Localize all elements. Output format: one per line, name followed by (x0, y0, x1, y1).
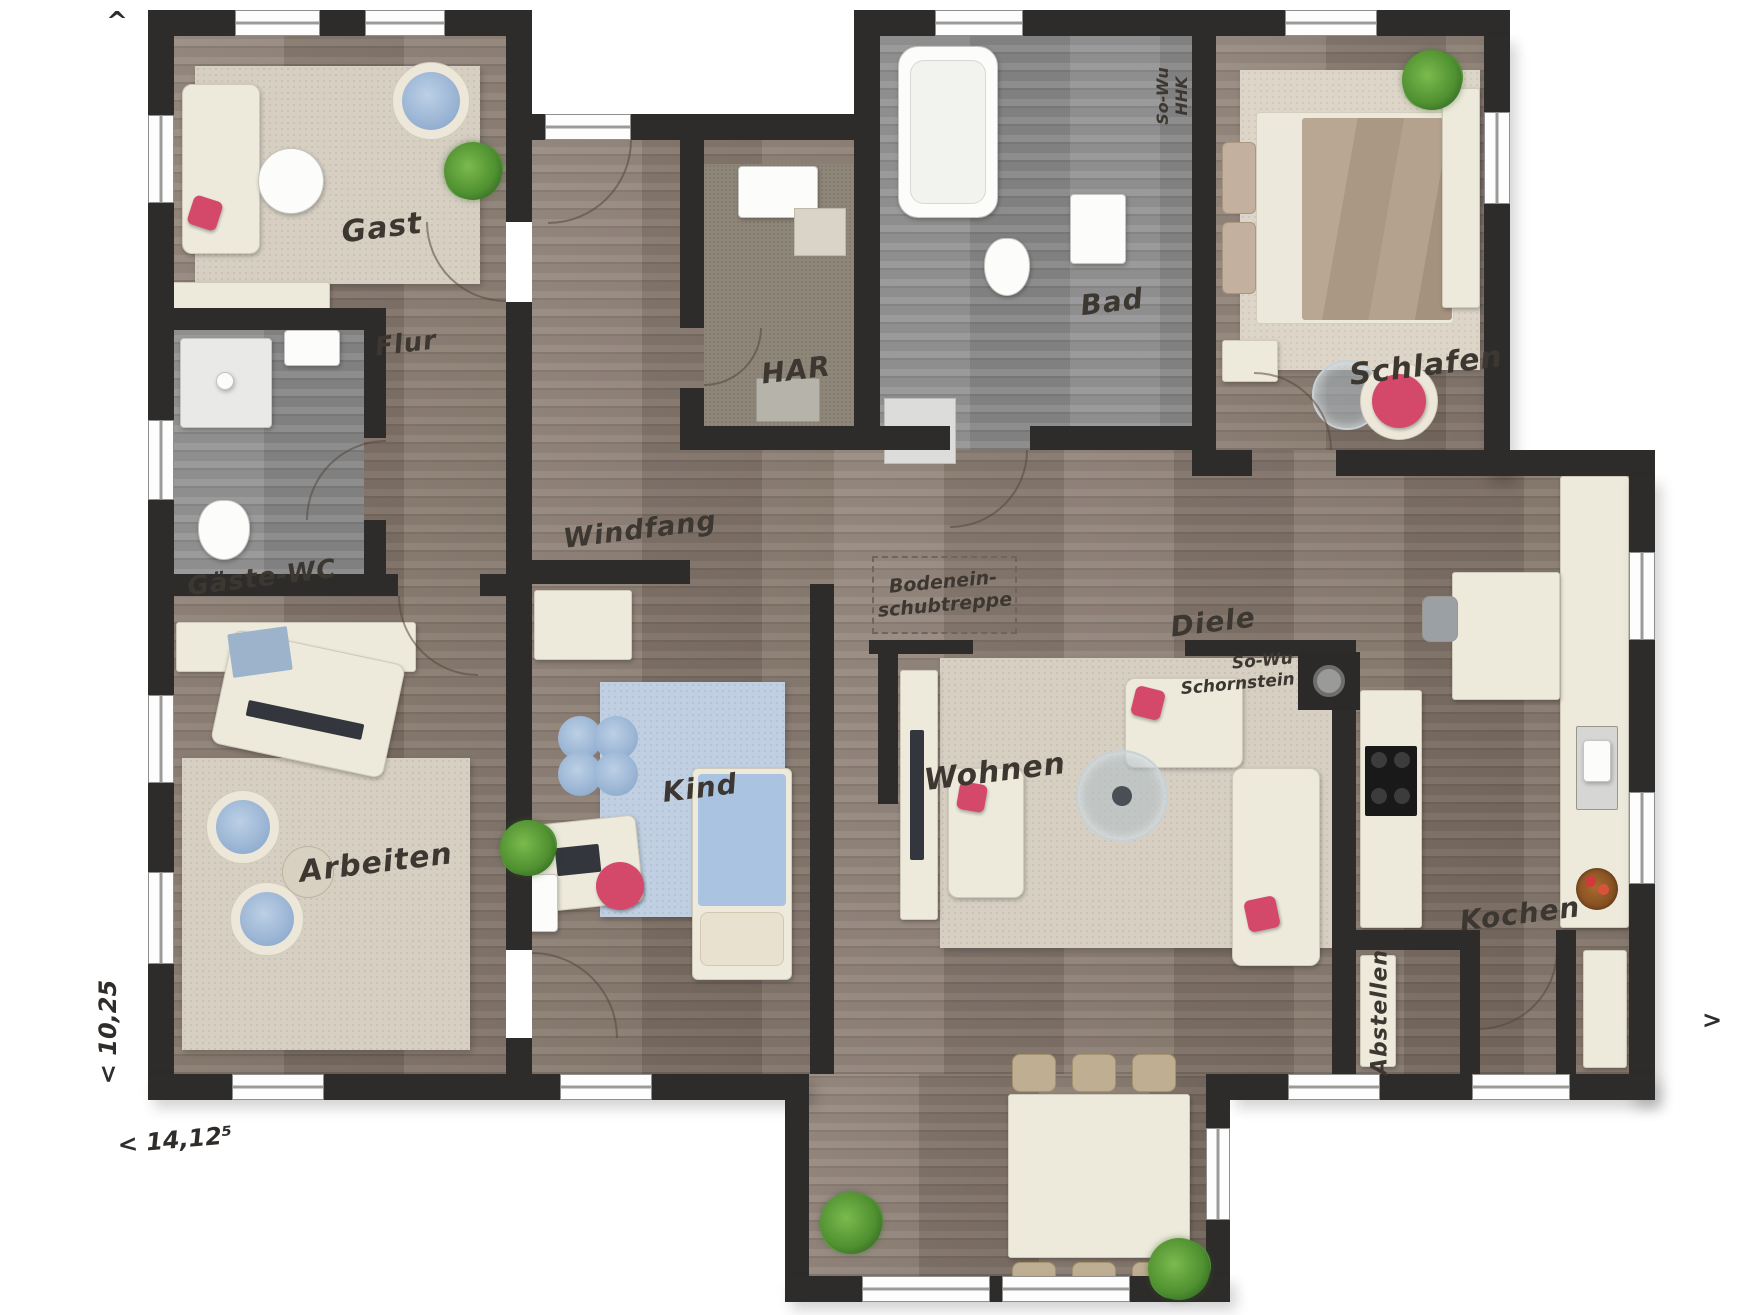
floor-plan: Gast Flur Gäste-WC Windfang HAR Kind Arb… (0, 0, 1754, 1315)
wall (854, 36, 880, 140)
wall (1030, 426, 1192, 450)
bed-blanket (1302, 118, 1452, 320)
window (148, 695, 174, 783)
living-sofa-right (1232, 768, 1320, 966)
bedroom-plant (1402, 50, 1462, 110)
wall (506, 584, 532, 950)
office-papers (227, 626, 293, 678)
north-marker: ^ (106, 7, 128, 37)
window (232, 1074, 324, 1100)
office-chair-2 (240, 892, 294, 946)
terrace-door (1002, 1276, 1130, 1302)
fruit-bowl (1576, 868, 1618, 910)
guest-armchair-seat (402, 72, 460, 130)
sink-bath (1070, 194, 1126, 264)
island-chair (1422, 596, 1458, 642)
wall (878, 654, 898, 804)
hhk-line2: HHK (1172, 67, 1191, 124)
window (365, 10, 445, 36)
window (1206, 1128, 1230, 1220)
fruit-apple-1 (1585, 876, 1596, 887)
window (1285, 10, 1377, 36)
guest-coffee-table (258, 148, 324, 214)
wall (680, 140, 704, 328)
window (1472, 1074, 1570, 1100)
living-table-bowl (1112, 786, 1132, 806)
dining-table (1008, 1094, 1190, 1258)
wall (506, 1038, 532, 1074)
burner-4 (1394, 788, 1410, 804)
wall (1484, 36, 1510, 476)
pantry-shelf (1583, 950, 1627, 1068)
wall (854, 426, 950, 450)
wall (785, 1074, 809, 1302)
burner-1 (1371, 752, 1387, 768)
shower-drain (216, 372, 234, 390)
kids-flower-pouf-d (594, 752, 638, 796)
wall (148, 10, 532, 36)
har-box (794, 208, 846, 256)
fruit-apple-2 (1598, 884, 1609, 895)
office-chair-1 (216, 800, 270, 854)
wall (506, 560, 690, 584)
window (1484, 112, 1510, 204)
window-entry-door (545, 114, 631, 140)
dining-plant-right (1148, 1238, 1210, 1300)
wall (506, 140, 532, 222)
room-label-abstellen: Abstellen (1368, 949, 1393, 1075)
dimension-depth: < 10,25 (94, 980, 122, 1084)
kids-plant (500, 820, 556, 876)
guest-sofa (182, 84, 260, 254)
window (148, 872, 174, 964)
window (148, 420, 174, 500)
hhk-label: So-Wu HHK (1153, 67, 1191, 124)
wall (1192, 450, 1252, 476)
wall (810, 584, 834, 1074)
kids-desk-chair (596, 862, 644, 910)
window (1288, 1074, 1380, 1100)
kitchen-island (1452, 572, 1560, 700)
bedroom-wardrobe (1442, 88, 1480, 308)
window (1629, 792, 1655, 884)
burner-2 (1394, 752, 1410, 768)
toilet-bath (984, 238, 1030, 296)
wall (1192, 36, 1216, 450)
east-marker: > (1702, 1006, 1722, 1034)
window (560, 1074, 652, 1100)
dining-chair-3 (1132, 1054, 1176, 1092)
terrace-door (862, 1276, 990, 1302)
kids-wardrobe (534, 590, 632, 660)
window (235, 10, 320, 36)
guest-sideboard (168, 282, 330, 310)
wall (1332, 655, 1356, 1074)
dimension-width: < 14,12⁵ (117, 1121, 234, 1159)
kitchen-sink-basin (1583, 740, 1611, 782)
wall (869, 640, 973, 654)
bathtub-inner (910, 60, 986, 204)
wall (148, 308, 386, 330)
window (935, 10, 1023, 36)
wall (1356, 930, 1460, 950)
wall (680, 426, 880, 450)
toilet-guest-wc (198, 500, 250, 560)
window (148, 115, 174, 203)
wall (1556, 930, 1576, 1074)
kitchen-counter-right (1560, 476, 1629, 928)
guest-plant (444, 142, 502, 200)
wall (1336, 450, 1484, 476)
wall (1484, 450, 1655, 476)
dining-chair-1 (1012, 1054, 1056, 1092)
chimney-flue (1313, 665, 1345, 697)
wall (364, 308, 386, 438)
tv (910, 730, 924, 860)
kids-laptop (555, 844, 602, 876)
bed-headboard-cushion-2 (1222, 222, 1256, 294)
wall (506, 302, 532, 560)
wall (1460, 930, 1480, 1074)
window (1629, 552, 1655, 640)
dining-chair-2 (1072, 1054, 1116, 1092)
hhk-line1: So-Wu (1153, 67, 1172, 124)
bed-headboard-cushion-1 (1222, 142, 1256, 214)
wall (854, 140, 880, 450)
dining-plant-left (820, 1192, 882, 1254)
burner-3 (1371, 788, 1387, 804)
sink-guest-wc (284, 330, 340, 366)
living-pillow-2 (1243, 895, 1281, 933)
kids-bed-pillow (700, 912, 784, 966)
